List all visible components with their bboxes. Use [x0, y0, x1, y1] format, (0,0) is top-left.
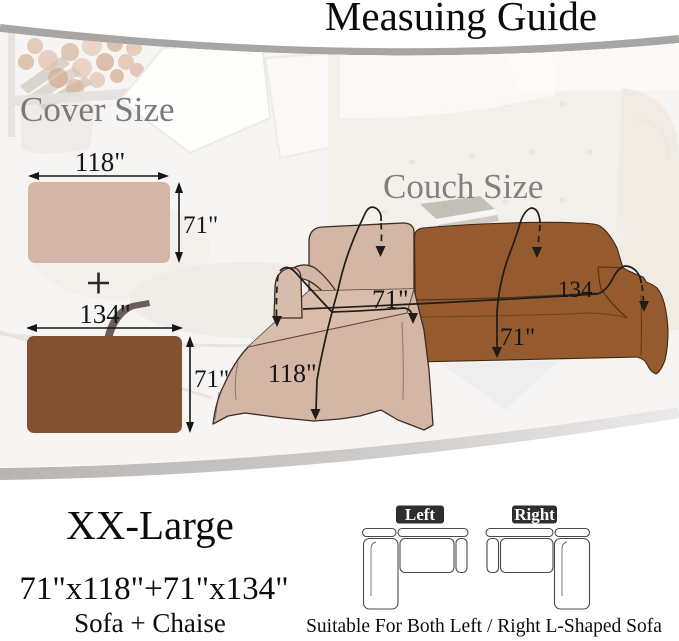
svg-text:Left: Left — [405, 505, 436, 524]
svg-text:134": 134" — [79, 299, 131, 329]
svg-text:118": 118" — [75, 147, 126, 177]
svg-text:Suitable For Both Left / Right: Suitable For Both Left / Right L-Shaped … — [306, 616, 662, 637]
svg-text:Sofa + Chaise: Sofa + Chaise — [74, 608, 226, 638]
svg-text:71": 71" — [183, 212, 218, 239]
svg-text:Measuing Guide: Measuing Guide — [325, 0, 597, 39]
svg-text:134: 134 — [558, 277, 593, 302]
svg-text:71": 71" — [372, 285, 409, 314]
svg-text:71": 71" — [500, 324, 535, 351]
svg-text:Right: Right — [514, 505, 555, 524]
svg-text:Couch Size: Couch Size — [383, 167, 543, 206]
svg-text:118": 118" — [268, 359, 317, 388]
svg-text:Cover Size: Cover Size — [20, 90, 175, 129]
svg-text:XX-Large: XX-Large — [66, 502, 234, 548]
svg-text:71"x118"+71"x134": 71"x118"+71"x134" — [19, 571, 288, 607]
